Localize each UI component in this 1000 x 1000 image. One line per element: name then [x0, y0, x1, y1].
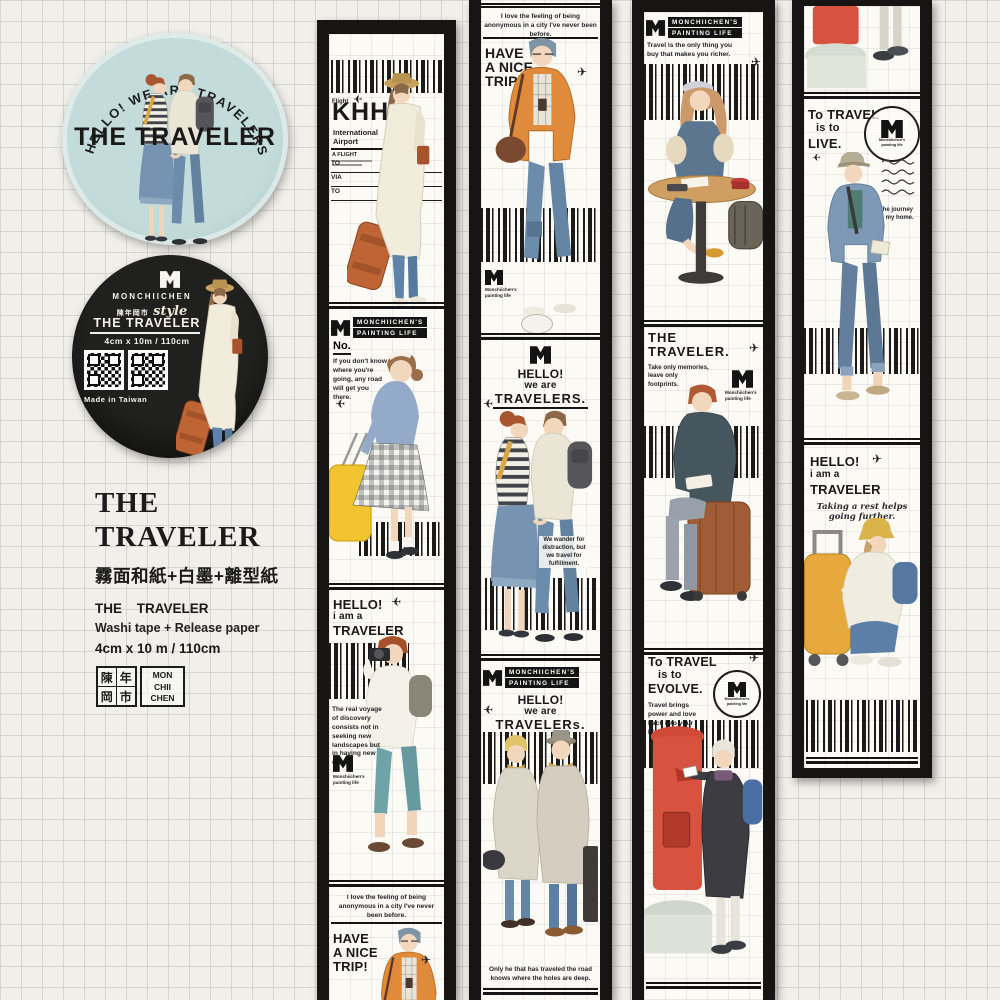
- quote-anonymous: I love the feeling of being anonymous in…: [331, 894, 442, 921]
- illustration-postbox-base-and-feet: [804, 6, 920, 92]
- graph-paper-background: HELLO! WE ARE TRAVELERS THE TRAVELER MON…: [0, 0, 1000, 1000]
- divider: [481, 333, 600, 340]
- info-title-line1: THE: [95, 486, 310, 520]
- washi-strip-2: I love the feeling of being anonymous in…: [469, 0, 612, 1000]
- seal-char: 市: [117, 687, 136, 705]
- round-sticker: [521, 314, 553, 334]
- monchiichen-m-logo: [646, 20, 665, 36]
- divider: [646, 982, 761, 989]
- airplane-icon: ✈: [391, 596, 401, 608]
- is-to-headline: is to: [658, 670, 682, 681]
- seal-stamp-cn: 陳 年 岡 市: [96, 666, 137, 707]
- have-headline: HAVE: [333, 932, 369, 945]
- info-material: Washi tape + Release paper: [95, 621, 310, 635]
- banner-line2: PAINTING LIFE: [353, 328, 427, 338]
- info-title-line2: TRAVELER: [95, 520, 310, 554]
- airplane-icon: ✈: [872, 453, 882, 465]
- logo-caption: Monchiichen's painting life: [485, 287, 521, 298]
- monchiichen-m-logo: [483, 670, 502, 686]
- brand-banner: MONCHIICHEN'S PAINTING LIFE: [646, 16, 761, 39]
- logo-caption: Monchiichen's painting life: [333, 774, 373, 785]
- illustration-winter-coat-couple: [483, 726, 598, 966]
- divider: [804, 438, 920, 445]
- banner-line1: MONCHIICHEN'S: [353, 317, 427, 327]
- product-info-block: THE TRAVELER 霧面和紙+白墨+離型紙 THE TRAVELER Wa…: [95, 486, 310, 656]
- roll-origin: Made in Taiwan: [84, 395, 147, 404]
- seal-stamp-en: MON CHII CHEN: [140, 666, 185, 707]
- illustration-man-sitting-on-suitcase: [650, 384, 755, 634]
- airplane-icon: ✈: [483, 704, 493, 716]
- logo-caption: Monchiichen's painting life: [874, 138, 910, 147]
- illustration-trench-coat-woman: [176, 277, 256, 458]
- monchiichen-m-logo: [333, 755, 353, 772]
- brand-banner: MONCHIICHEN'S PAINTING LIFE: [483, 666, 598, 689]
- hello-headline: HELLO!: [333, 598, 383, 611]
- illustration-crouching-girl-yellow-suitcase: [804, 518, 920, 698]
- illustration-coffee-man: [489, 36, 593, 320]
- divider: [483, 988, 598, 995]
- the-headline: THE: [648, 331, 677, 344]
- hello-headline: HELLO!: [810, 455, 860, 468]
- seal-line: CHII: [142, 682, 183, 692]
- illustration-kissing-couple: [483, 404, 596, 645]
- live-headline: LIVE.: [808, 137, 842, 150]
- illustration-trench-coat-woman: [347, 70, 444, 306]
- washi-strip-4: To TRAVEL is to LIVE. Monchiichen's pain…: [792, 0, 932, 778]
- info-spec-cn: 霧面和紙+白墨+離型紙: [95, 563, 310, 588]
- divider: [481, 654, 600, 661]
- rule: [331, 922, 442, 924]
- quote-wander: We wander for distraction, but we travel…: [539, 536, 589, 568]
- divider: [329, 583, 444, 590]
- monchiichen-m-logo: [728, 682, 746, 697]
- illustration-kissing-couple: [95, 69, 255, 247]
- iama-headline: i am a: [810, 470, 840, 480]
- illustration-man-reading-map: [806, 152, 906, 452]
- divider: [329, 302, 444, 309]
- to-travel-headline: To TRAVEL: [648, 656, 717, 669]
- divider: [644, 648, 763, 655]
- barcode: [806, 700, 918, 752]
- logo-caption: Monchiichen's painting life: [722, 697, 752, 706]
- is-to-headline: is to: [816, 123, 840, 134]
- hello-headline: HELLO!: [481, 694, 600, 706]
- seal-line: CHEN: [142, 693, 183, 703]
- divider: [804, 92, 920, 99]
- brand-banner: MONCHIICHEN'S PAINTING LIFE: [331, 316, 442, 339]
- illustration-gingham-skirt-girl: [329, 345, 444, 580]
- divider: [644, 320, 763, 327]
- illustration-coffee-man: [365, 926, 444, 1000]
- washi-roll-teal: HELLO! WE ARE TRAVELERS THE TRAVELER: [62, 33, 288, 245]
- qr-code-right: [128, 350, 168, 390]
- postmark-stamp: Monchiichen's painting life: [713, 670, 761, 718]
- seal-char: 岡: [98, 687, 117, 705]
- trip-headline: TRIP!: [333, 960, 368, 973]
- airplane-icon: ✈: [749, 652, 759, 664]
- divider: [329, 880, 444, 887]
- quote-richer: Travel is the only thing you buy that ma…: [647, 42, 739, 60]
- banner-line2: PAINTING LIFE: [505, 678, 579, 688]
- seal-char: 年: [117, 668, 136, 687]
- info-name: THE TRAVELER: [95, 601, 310, 616]
- info-size: 4cm x 10 m / 110cm: [95, 641, 310, 656]
- airplane-icon: ✈: [421, 954, 431, 966]
- illustration-cafe-writing-girl: [644, 76, 763, 328]
- iama-headline: i am a: [333, 612, 363, 622]
- banner-line2: PAINTING LIFE: [668, 28, 742, 38]
- weare-headline: we are: [481, 707, 600, 717]
- monchiichen-m-logo: [485, 270, 503, 285]
- qr-code-left: [84, 350, 124, 390]
- washi-strip-1: Flight ✈ KHH International Airport A FLI…: [317, 20, 456, 1000]
- banner-line1: MONCHIICHEN'S: [505, 667, 579, 677]
- washi-strip-3: MONCHIICHEN'S PAINTING LIFE Travel is th…: [632, 0, 775, 1000]
- monchiichen-m-logo: [331, 320, 350, 336]
- divider: [806, 757, 918, 764]
- roll-title: THE TRAVELER: [62, 125, 288, 150]
- quote-holes: Only he that has traveled the road knows…: [483, 966, 598, 983]
- washi-roll-black: MONCHIICHEN 陳年岡市 style THE TRAVELER 4cm …: [72, 255, 268, 458]
- banner-line1: MONCHIICHEN'S: [668, 17, 742, 27]
- traveler-dot-headline: TRAVELER.: [648, 345, 730, 358]
- evolve-headline: EVOLVE.: [648, 683, 703, 696]
- monchiichen-m-logo: [530, 346, 551, 364]
- seal-line: MON: [142, 670, 183, 680]
- seal-char: 陳: [98, 668, 117, 687]
- traveler-headline: TRAVELER: [810, 483, 881, 496]
- weare-headline: we are: [481, 381, 600, 391]
- monchiichen-m-logo: [881, 120, 903, 138]
- hello-headline: HELLO!: [481, 368, 600, 380]
- divider: [481, 3, 600, 8]
- illustration-girl-mailing-letter-postbox: [644, 714, 763, 980]
- airplane-icon: ✈: [749, 342, 759, 354]
